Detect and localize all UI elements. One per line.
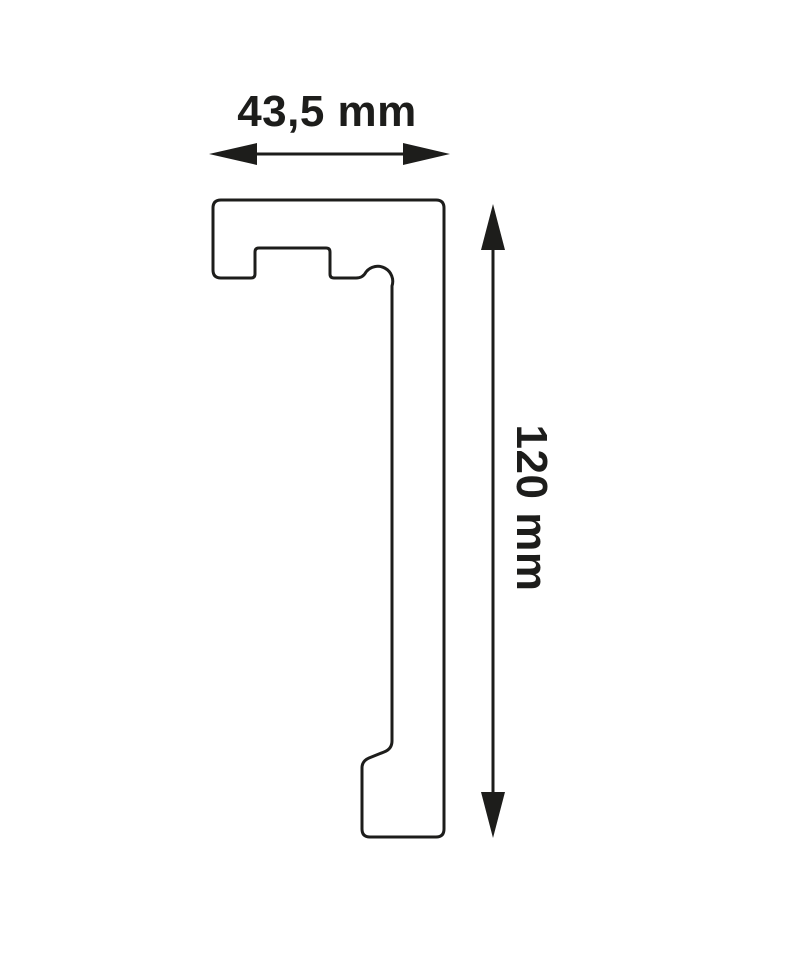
- arrowhead-down-icon: [481, 792, 505, 838]
- height-dimension-arrow: [481, 204, 505, 838]
- profile-outline: [213, 200, 444, 837]
- arrowhead-left-icon: [209, 143, 257, 165]
- width-dimension-label: 43,5 mm: [237, 87, 417, 137]
- diagram-canvas: 43,5 mm 120 mm: [0, 0, 800, 958]
- width-dimension-arrow: [209, 143, 450, 165]
- profile-diagram: [0, 0, 800, 958]
- arrowhead-up-icon: [481, 204, 505, 250]
- height-dimension-label: 120 mm: [506, 425, 556, 592]
- arrowhead-right-icon: [403, 143, 450, 165]
